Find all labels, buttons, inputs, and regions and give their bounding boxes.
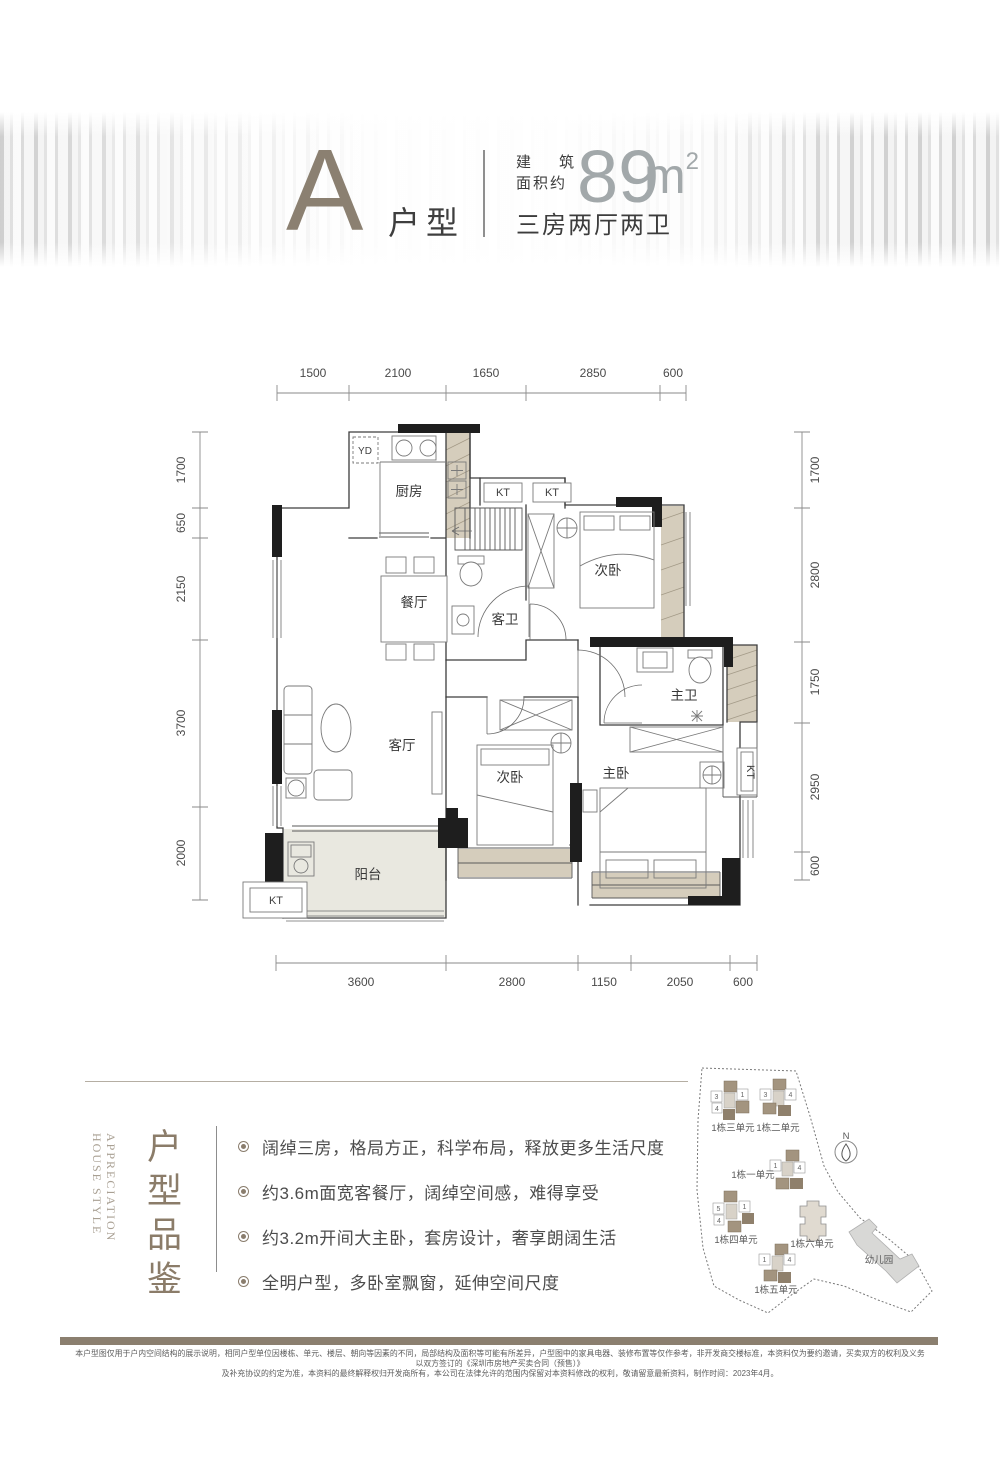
disclaimer-line1: 本户型图仅用于户内空间结构的展示说明，相同户型单位因楼栋、单元、楼层、朝向等因素…	[73, 1349, 927, 1369]
svg-text:4: 4	[715, 1106, 719, 1113]
feature-text: 全明户型，多卧室飘窗，延伸空间尺度	[262, 1269, 560, 1294]
mark-kt-3: KT	[744, 765, 756, 779]
dim-right-4: 2950	[808, 773, 822, 800]
feature-text: 阔绰三房，格局方正，科学布局，释放更多生活尺度	[262, 1134, 665, 1159]
footer-accent-bar	[60, 1337, 938, 1345]
room-master: 主卧	[603, 766, 630, 781]
site-label-unit3: 1栋三单元	[711, 1122, 755, 1134]
bullet-icon	[238, 1186, 249, 1197]
dim-left-5: 2000	[174, 839, 188, 866]
kindergarten-building	[849, 1219, 919, 1283]
room-living: 客厅	[389, 737, 416, 753]
building-cluster-1: 1 4	[770, 1150, 805, 1189]
building-cluster-6	[800, 1201, 826, 1241]
service-zones	[284, 433, 757, 917]
dim-top-2: 2100	[385, 366, 412, 380]
section-rule	[85, 1081, 688, 1082]
dim-right-5: 600	[808, 856, 822, 876]
svg-text:3: 3	[764, 1092, 768, 1099]
room-dining: 餐厅	[401, 595, 428, 610]
svg-text:4: 4	[789, 1092, 793, 1099]
svg-text:4: 4	[798, 1165, 802, 1172]
svg-text:1: 1	[743, 1204, 747, 1211]
mark-kt-1: KT	[496, 487, 510, 499]
mark-kt-2: KT	[545, 487, 559, 499]
dim-top-1: 1500	[300, 366, 327, 380]
feature-text: 约3.6m面宽客餐厅，阔绰空间感，难得享受	[262, 1179, 599, 1204]
section-title-cn: 户型品鉴	[136, 1128, 187, 1304]
building-cluster-2: 3 4	[760, 1079, 796, 1116]
feature-item: 约3.6m面宽客餐厅，阔绰空间感，难得享受	[238, 1181, 668, 1202]
dim-right-3: 1750	[808, 668, 822, 695]
area-unit-m: m	[644, 148, 686, 204]
bullet-icon	[238, 1231, 249, 1242]
section-title-en-2: APPRECIATION	[103, 1133, 118, 1242]
site-label-kindergarten: 幼儿园	[865, 1254, 894, 1266]
building-cluster-3: 3 1 4	[711, 1081, 749, 1120]
dim-right-1: 1700	[808, 456, 822, 483]
disclaimer-line2: 及补充协议的约定为准，本资料的最终解释权归开发商所有，本公司在法律允许的范围内保…	[73, 1369, 927, 1379]
dim-bottom-5: 600	[733, 975, 753, 989]
feature-item: 阔绰三房，格局方正，科学布局，释放更多生活尺度	[238, 1136, 668, 1157]
feature-item: 全明户型，多卧室飘窗，延伸空间尺度	[238, 1271, 668, 1292]
feature-list: 阔绰三房，格局方正，科学布局，释放更多生活尺度 约3.6m面宽客餐厅，阔绰空间感…	[238, 1136, 668, 1316]
room-bedroom-top: 次卧	[595, 563, 622, 578]
dim-bottom-2: 2800	[499, 975, 526, 989]
area-caption-line1: 建筑	[516, 152, 574, 173]
svg-text:1: 1	[774, 1163, 778, 1170]
site-label-unit1: 1栋一单元	[731, 1169, 775, 1181]
room-master-bath: 主卫	[671, 688, 698, 703]
room-kitchen: 厨房	[396, 484, 423, 499]
dim-bottom-3: 1150	[591, 975, 617, 989]
svg-text:5: 5	[717, 1206, 721, 1213]
svg-text:1: 1	[741, 1092, 745, 1099]
disclaimer: 本户型图仅用于户内空间结构的展示说明，相同户型单位因楼栋、单元、楼层、朝向等因素…	[73, 1349, 927, 1379]
unit-type-label: 户型	[388, 198, 464, 244]
section-title-en-1: HOUSE STYLE	[89, 1133, 104, 1235]
compass-n-label: N	[843, 1131, 850, 1142]
svg-text:1: 1	[763, 1257, 767, 1264]
feature-text: 约3.2m开间大主卧，套房设计，奢享朗阔生活	[262, 1224, 617, 1249]
area-unit-exponent: 2	[686, 148, 699, 175]
room-guest-bath: 客卫	[492, 611, 519, 627]
dim-bottom-1: 3600	[348, 975, 375, 989]
feature-item: 约3.2m开间大主卧，套房设计，奢享朗阔生活	[238, 1226, 668, 1247]
floor-plan: 厨房 餐厅 客卫 次卧 客厅 次卧 主卧 主卫 阳台 KT KT KT KT Y…	[150, 350, 890, 1010]
site-label-unit2: 1栋二单元	[756, 1122, 800, 1134]
layout-spec: 三房两厅两卫	[516, 205, 672, 240]
building-cluster-4: 5 1 4	[713, 1191, 754, 1232]
dim-top-5: 600	[663, 366, 683, 380]
svg-text:3: 3	[715, 1094, 719, 1101]
header-stripes-decoration	[0, 112, 1000, 267]
mark-yd: YD	[358, 446, 372, 457]
dim-right-2: 2800	[808, 561, 822, 588]
svg-text:4: 4	[717, 1218, 721, 1225]
mark-kt-4: KT	[269, 895, 283, 907]
dim-left-3: 2150	[174, 575, 188, 602]
section-divider	[216, 1126, 217, 1272]
site-plan: 3 1 4 3 4 1 4 5 1 4	[675, 1052, 995, 1332]
bullet-icon	[238, 1276, 249, 1287]
dim-left-2: 650	[174, 513, 188, 533]
dim-top-4: 2850	[580, 366, 607, 380]
site-label-unit6: 1栋六单元	[790, 1238, 834, 1250]
dim-bottom-4: 2050	[667, 975, 694, 989]
dim-top-3: 1650	[473, 366, 500, 380]
room-bedroom-mid: 次卧	[497, 770, 524, 785]
bullet-icon	[238, 1141, 249, 1152]
svg-text:4: 4	[788, 1257, 792, 1264]
brochure-page: A 户型 建筑 面积约 89 m2 三房两厅两卫	[0, 0, 1000, 1461]
room-balcony: 阳台	[355, 867, 382, 882]
site-label-unit5: 1栋五单元	[754, 1284, 798, 1296]
unit-type-letter: A	[286, 132, 363, 248]
dim-left-4: 3700	[174, 709, 188, 736]
site-label-unit4: 1栋四单元	[714, 1234, 758, 1246]
dim-left-1: 1700	[174, 456, 188, 483]
area-caption: 建筑 面积约	[516, 152, 574, 194]
area-caption-line2: 面积约	[516, 173, 574, 194]
header-divider	[483, 150, 485, 237]
area-unit: m2	[644, 150, 699, 201]
north-compass-icon: N	[835, 1131, 857, 1163]
